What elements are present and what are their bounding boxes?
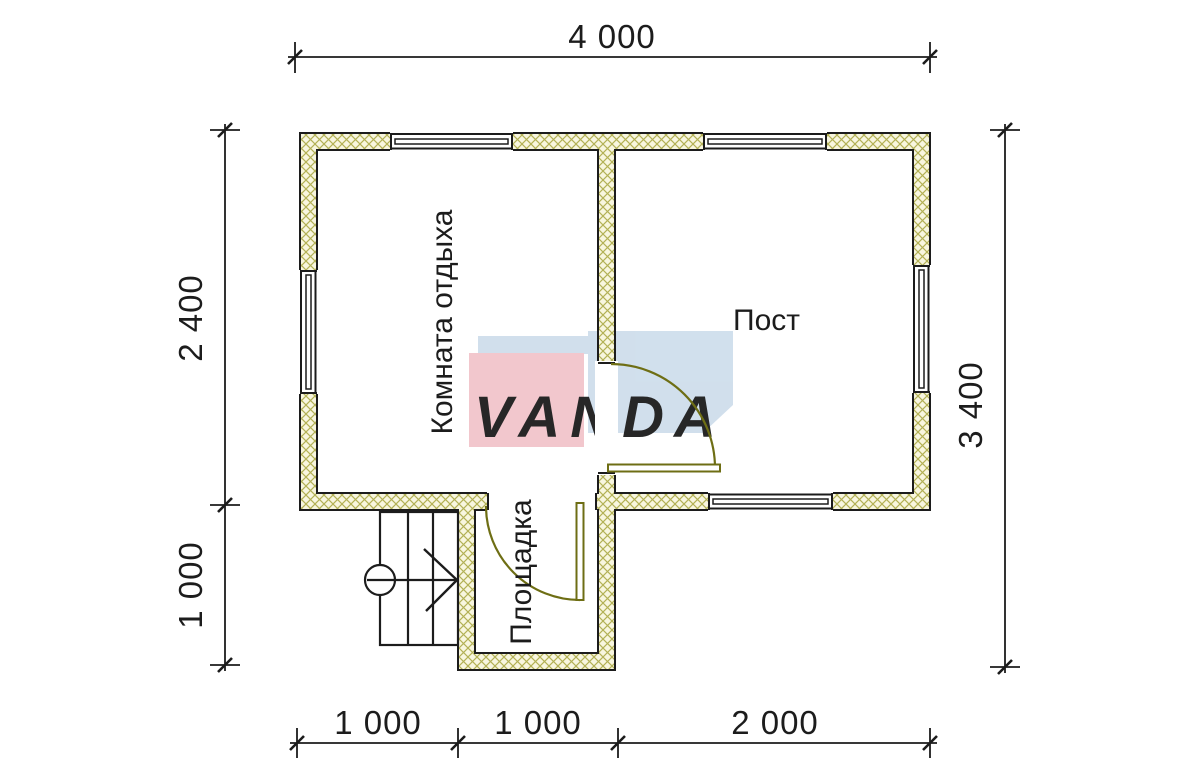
dim-label-right: 3 400 xyxy=(952,361,989,449)
window-bottom xyxy=(708,492,833,512)
interior-door-leaf xyxy=(608,465,720,472)
dim-label-bottom-mid: 1 000 xyxy=(494,704,582,741)
dim-label-left-lower: 1 000 xyxy=(172,541,209,629)
floor-plan-canvas: VANDA xyxy=(0,0,1200,772)
room-label-post: Пост xyxy=(733,304,800,337)
dim-label-bottom-left: 1 000 xyxy=(334,704,422,741)
window-top-left xyxy=(390,131,513,152)
window-right xyxy=(912,265,931,393)
room-label-landing: Площадка xyxy=(505,499,538,645)
window-top-right xyxy=(703,131,827,152)
dim-label-top: 4 000 xyxy=(568,18,656,55)
floor-plan-drawing: VANDA xyxy=(0,0,1200,772)
watermark-blue-band xyxy=(478,336,588,354)
stairs xyxy=(365,512,458,645)
entrance-door-leaf xyxy=(577,503,584,600)
room-label-rest: Комната отдыха xyxy=(426,209,459,434)
dim-label-bottom-right: 2 000 xyxy=(731,704,819,741)
window-left xyxy=(299,270,318,394)
dim-label-left-upper: 2 400 xyxy=(172,274,209,362)
